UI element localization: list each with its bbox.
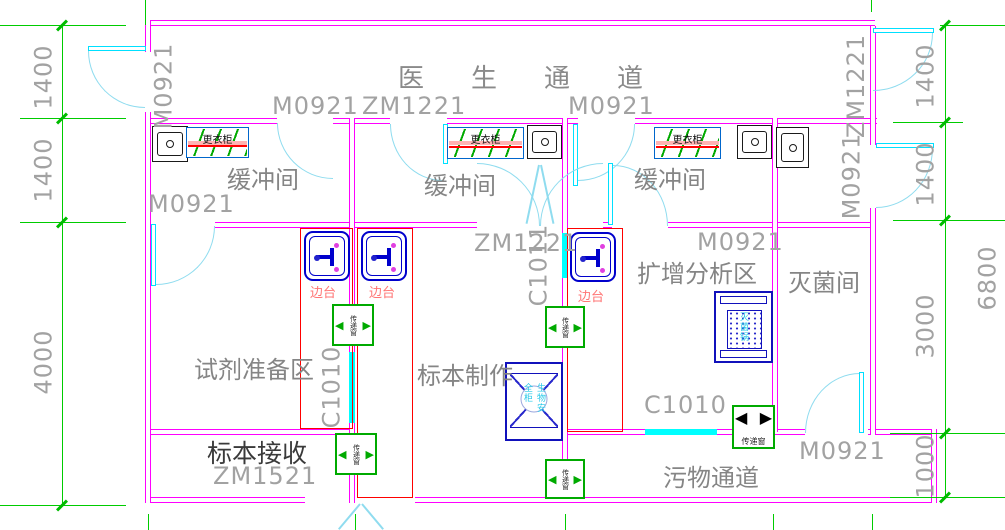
room-label-buffer-3: 缓冲间 xyxy=(634,160,706,195)
dim-label-right-1000: 1000 xyxy=(896,430,956,502)
side-bench-label: 边台 xyxy=(369,282,395,301)
dim-label-left-1400b: 1400 xyxy=(14,134,74,206)
sterilizer-label: 灭菌锅 xyxy=(737,312,750,342)
door-code-right-exit: M0921 xyxy=(821,140,881,212)
pass-arrow-icon: ◀ xyxy=(335,320,343,331)
pass-arrow-icon: ◀ xyxy=(735,408,747,427)
window-code-bottom: C1010 xyxy=(644,391,727,419)
door-arc xyxy=(805,373,860,433)
double-door-leaf xyxy=(338,503,361,530)
side-bench-label: 边台 xyxy=(578,286,604,305)
window-code-c1011: C1011 xyxy=(508,229,568,301)
dim-label-left-4000: 4000 xyxy=(14,326,74,398)
door-code-waste: M0921 xyxy=(799,437,886,465)
grid-marker xyxy=(871,0,872,12)
grid-marker xyxy=(773,514,774,530)
pass-arrow-icon: ◀ xyxy=(338,449,346,460)
pass-arrow-icon: ▶ xyxy=(363,320,371,331)
grid-marker xyxy=(145,0,146,25)
door-code-buffer2-top: ZM1221 xyxy=(362,92,466,120)
sink-icon xyxy=(152,126,188,162)
pass-window-icon: ◀ 传递窗 ▶ xyxy=(545,306,585,348)
dimension-line xyxy=(20,222,126,223)
dim-label-left-1400a: 1400 xyxy=(14,41,74,113)
door-code-buffer3-top: M0921 xyxy=(568,92,655,120)
side-bench-label: 边台 xyxy=(310,282,336,301)
pass-arrow-icon: ◀ xyxy=(548,322,556,333)
room-label-amplification: 扩增分析区 xyxy=(637,254,757,289)
pass-window-icon: ◀ ▶ 传递窗 xyxy=(732,405,775,449)
double-door-leaf xyxy=(361,503,384,530)
sink-station-icon xyxy=(304,231,350,281)
pass-window-icon: ◀ 传递窗 ▶ xyxy=(335,433,377,475)
wardrobe-label: 更衣柜 xyxy=(655,131,720,146)
door-code-buffer1-side: M0921 xyxy=(148,190,235,218)
wall-segment xyxy=(447,118,578,124)
wall-segment xyxy=(870,208,876,435)
door-arc xyxy=(156,226,215,285)
wardrobe-icon: 更衣柜 xyxy=(654,127,721,159)
door-leaf xyxy=(859,372,864,433)
wardrobe-icon: 更衣柜 xyxy=(447,127,524,159)
wardrobe-label: 更衣柜 xyxy=(448,131,523,146)
door-leaf xyxy=(608,163,613,225)
dim-label-right-1400b: 1400 xyxy=(896,138,956,210)
grid-marker xyxy=(872,514,873,530)
biosafety-cabinet-label: 生物安全柜 xyxy=(521,383,547,421)
room-label-waste-corridor: 污物通道 xyxy=(663,458,759,493)
pass-arrow-icon: ◀ xyxy=(548,474,556,485)
pass-window-label: 传递窗 xyxy=(742,438,766,446)
dim-label-overall-6800: 6800 xyxy=(958,242,1005,314)
sink-station-icon xyxy=(361,231,407,281)
door-code-amplification: M0921 xyxy=(697,228,784,256)
sink-icon xyxy=(527,125,562,159)
wall-segment xyxy=(145,112,151,503)
pass-arrow-icon: ▶ xyxy=(574,322,582,333)
pass-arrow-icon: ▶ xyxy=(574,474,582,485)
pass-window-label: 传递窗 xyxy=(353,444,360,465)
room-label-doctor-corridor: 医生通道 xyxy=(398,58,690,95)
wall-segment xyxy=(415,497,937,503)
dim-label-right-1400a: 1400 xyxy=(896,40,956,112)
door-code-top-left: M0921 xyxy=(133,50,193,122)
sterilizer-icon: 灭菌锅 xyxy=(714,291,773,363)
dimension-line xyxy=(940,25,1005,26)
door-leaf xyxy=(151,224,156,286)
wardrobe-rail-line xyxy=(449,146,522,148)
grid-marker xyxy=(148,514,149,530)
room-label-sterilization: 灭菌间 xyxy=(788,263,860,298)
wall-segment xyxy=(145,20,875,26)
pass-window-label: 传递窗 xyxy=(562,469,569,490)
dimension-line xyxy=(893,122,963,123)
room-label-specimen-making: 标本制作 xyxy=(417,356,513,391)
pass-window-icon: ◀ 传递窗 ▶ xyxy=(332,304,374,346)
door-code-buffer1-top: M0921 xyxy=(272,92,359,120)
room-label-buffer-1: 缓冲间 xyxy=(227,160,299,195)
pass-window-label: 传递窗 xyxy=(350,315,357,336)
pass-window-label: 传递窗 xyxy=(562,317,569,338)
wall-segment xyxy=(145,497,305,503)
wardrobe-label: 更衣柜 xyxy=(187,131,248,146)
grid-marker xyxy=(355,514,356,530)
door-code-top-right: ZM1221 xyxy=(826,50,886,122)
pass-arrow-icon: ▶ xyxy=(366,449,374,460)
grid-marker xyxy=(565,514,566,530)
dimension-line xyxy=(20,118,126,119)
room-label-buffer-2: 缓冲间 xyxy=(424,166,496,201)
door-code-receiving: ZM1521 xyxy=(213,462,317,490)
door-arc xyxy=(540,163,603,226)
wardrobe-icon: 更衣柜 xyxy=(186,127,249,158)
sink-icon xyxy=(737,125,772,159)
wardrobe-rail-line xyxy=(656,146,719,148)
dimension-line xyxy=(893,220,1005,221)
dim-label-right-3000: 3000 xyxy=(896,290,956,362)
room-label-reagent-prep: 试剂准备区 xyxy=(194,350,314,385)
door-leaf xyxy=(873,28,934,33)
biosafety-cabinet-icon: 生物安全柜 xyxy=(505,362,563,441)
sink-icon xyxy=(776,127,809,168)
window-code-c1010-left: C1010 xyxy=(301,351,361,423)
window-strip-c1010-bottom xyxy=(645,429,717,435)
pass-window-icon: ◀ 传递窗 ▶ xyxy=(545,459,585,499)
pcr-lab-floor-plan: 更衣柜 更衣柜 更衣柜 ◀ 传递窗 ▶ ◀ 传递窗 ▶ ◀ 传递窗 ▶ xyxy=(0,0,1005,530)
pass-arrow-icon: ▶ xyxy=(760,408,772,427)
